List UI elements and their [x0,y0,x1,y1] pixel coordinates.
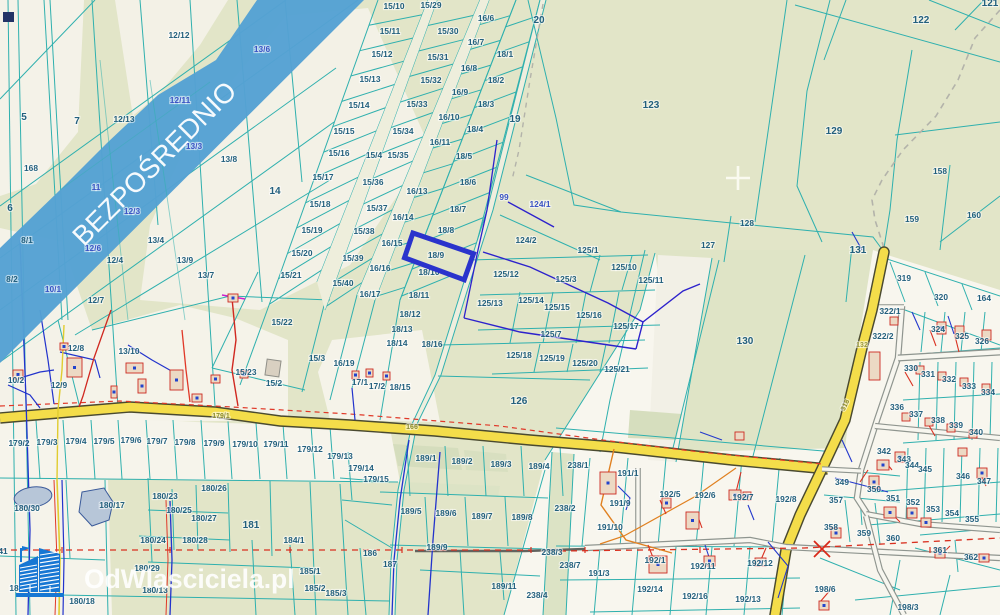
svg-text:125/3: 125/3 [556,274,577,284]
svg-text:192/8: 192/8 [776,494,797,504]
svg-text:126: 126 [511,396,528,407]
svg-text:189/7: 189/7 [472,511,493,521]
svg-text:13/6: 13/6 [254,44,271,54]
svg-text:125/18: 125/18 [506,350,532,360]
svg-text:191/9: 191/9 [610,498,631,508]
svg-text:238/3: 238/3 [542,547,563,557]
svg-text:125/16: 125/16 [576,310,602,320]
svg-text:352: 352 [906,497,920,507]
svg-text:18/3: 18/3 [478,99,495,109]
svg-text:15/21: 15/21 [281,270,302,280]
svg-text:13/4: 13/4 [148,235,165,245]
svg-text:18/5: 18/5 [456,151,473,161]
svg-text:15/15: 15/15 [334,126,355,136]
svg-text:353: 353 [926,504,940,514]
svg-text:180/27: 180/27 [191,513,217,523]
svg-text:128: 128 [740,218,754,228]
svg-text:189/2: 189/2 [452,456,473,466]
svg-text:12/11: 12/11 [170,95,191,105]
svg-text:16/16: 16/16 [370,263,391,273]
svg-text:6: 6 [7,203,13,214]
svg-text:15/18: 15/18 [310,199,331,209]
svg-text:12/13: 12/13 [114,114,135,124]
svg-text:15/22: 15/22 [272,317,293,327]
svg-text:18/1: 18/1 [497,49,514,59]
svg-text:180/17: 180/17 [99,500,125,510]
svg-text:13/9: 13/9 [177,255,194,265]
svg-text:20: 20 [533,15,545,26]
svg-text:351: 351 [886,493,900,503]
svg-text:185/3: 185/3 [326,588,347,598]
svg-text:332: 332 [942,374,956,384]
svg-text:189/6: 189/6 [436,508,457,518]
svg-text:8/1: 8/1 [21,235,33,245]
svg-text:15/20: 15/20 [292,248,313,258]
svg-text:125/20: 125/20 [572,358,598,368]
svg-text:15/16: 15/16 [329,148,350,158]
svg-text:179/14: 179/14 [348,463,374,473]
svg-text:238/4: 238/4 [527,590,548,600]
svg-text:160: 160 [967,210,981,220]
svg-text:14: 14 [269,186,281,197]
svg-text:125/12: 125/12 [493,269,519,279]
svg-text:18/4: 18/4 [467,124,484,134]
svg-text:192/5: 192/5 [660,489,681,499]
svg-text:18/7: 18/7 [450,204,467,214]
svg-text:12/7: 12/7 [88,295,105,305]
svg-text:16/7: 16/7 [468,37,485,47]
svg-text:125/15: 125/15 [544,302,570,312]
svg-text:15/10: 15/10 [384,1,405,11]
svg-text:125/21: 125/21 [604,364,630,374]
svg-text:18/12: 18/12 [400,309,421,319]
svg-text:18/16: 18/16 [422,339,443,349]
svg-text:16/11: 16/11 [430,137,451,147]
svg-text:179/9: 179/9 [204,438,225,448]
svg-text:13/10: 13/10 [119,346,140,356]
svg-text:187: 187 [383,559,397,569]
svg-text:15/2: 15/2 [266,378,283,388]
svg-text:358: 358 [824,522,838,532]
svg-text:168: 168 [24,163,38,173]
svg-text:15/23: 15/23 [236,367,257,377]
svg-text:334: 334 [981,387,995,397]
svg-text:191/10: 191/10 [597,522,623,532]
svg-text:15/30: 15/30 [438,26,459,36]
svg-text:179/11: 179/11 [263,439,288,449]
svg-text:10/1: 10/1 [45,284,62,294]
svg-text:180/26: 180/26 [201,483,227,493]
svg-text:124/1: 124/1 [530,199,551,209]
svg-text:326: 326 [975,336,989,346]
svg-text:191/3: 191/3 [589,568,610,578]
svg-text:179/5: 179/5 [94,436,115,446]
svg-text:347: 347 [977,476,991,486]
svg-text:15/40: 15/40 [333,278,354,288]
svg-text:16/15: 16/15 [382,238,403,248]
svg-text:16/19: 16/19 [334,358,355,368]
svg-text:180/25: 180/25 [166,505,192,515]
svg-text:333: 333 [962,381,976,391]
svg-text:125/14: 125/14 [518,295,544,305]
svg-text:320: 320 [934,292,948,302]
svg-text:15/39: 15/39 [343,253,364,263]
svg-text:339: 339 [949,420,963,430]
svg-text:15/3: 15/3 [309,353,326,363]
svg-text:179/6: 179/6 [121,435,142,445]
svg-text:16/10: 16/10 [439,112,460,122]
svg-text:15/38: 15/38 [354,226,375,236]
svg-text:5: 5 [21,112,27,123]
svg-text:357: 357 [829,495,843,505]
svg-text:179/15: 179/15 [363,474,389,484]
svg-text:OdWlasciciela.pl: OdWlasciciela.pl [84,564,295,594]
svg-text:18/11: 18/11 [409,290,430,300]
svg-text:361: 361 [933,545,947,555]
svg-text:179/4: 179/4 [66,436,87,446]
svg-text:180/23: 180/23 [152,491,178,501]
svg-text:10/2: 10/2 [8,375,25,385]
svg-text:12/3: 12/3 [124,206,141,216]
svg-text:18/14: 18/14 [387,338,408,348]
svg-text:124/2: 124/2 [516,235,537,245]
svg-text:179/8: 179/8 [175,437,196,447]
svg-text:13/8: 13/8 [221,154,238,164]
svg-text:180/28: 180/28 [182,535,208,545]
svg-text:189/1: 189/1 [416,453,437,463]
svg-text:338: 338 [931,415,945,425]
svg-text:238/7: 238/7 [560,560,581,570]
svg-text:122: 122 [913,15,930,26]
svg-text:355: 355 [965,514,979,524]
svg-text:179/1: 179/1 [212,413,230,420]
svg-text:18: 18 [9,583,19,593]
svg-text:322/1: 322/1 [880,306,901,316]
svg-text:15/34: 15/34 [393,126,414,136]
svg-text:18/8: 18/8 [438,225,455,235]
svg-text:238/2: 238/2 [555,503,576,513]
svg-text:180/18: 180/18 [69,596,95,606]
svg-text:15/36: 15/36 [363,177,384,187]
svg-text:189/11: 189/11 [491,581,516,591]
svg-text:340: 340 [969,427,983,437]
svg-text:180/24: 180/24 [140,535,166,545]
svg-text:19: 19 [509,114,521,125]
svg-text:238/1: 238/1 [568,460,589,470]
svg-text:41: 41 [0,546,8,556]
svg-text:15/14: 15/14 [349,100,370,110]
svg-text:16/17: 16/17 [360,289,381,299]
svg-text:324: 324 [931,324,945,334]
svg-text:12/9: 12/9 [51,380,68,390]
svg-text:125/19: 125/19 [539,353,565,363]
svg-text:13/7: 13/7 [198,270,215,280]
svg-text:322/2: 322/2 [873,331,894,341]
svg-text:129: 129 [826,126,843,137]
svg-text:7: 7 [74,116,80,127]
svg-text:189/5: 189/5 [401,506,422,516]
svg-text:189/3: 189/3 [491,459,512,469]
svg-text:354: 354 [945,508,959,518]
svg-text:16/8: 16/8 [461,63,478,73]
svg-text:15/32: 15/32 [421,75,442,85]
svg-text:15/12: 15/12 [372,49,393,59]
svg-text:191/1: 191/1 [618,468,639,478]
svg-text:189/8: 189/8 [512,512,533,522]
svg-text:15/4: 15/4 [366,150,383,160]
svg-text:192/6: 192/6 [695,490,716,500]
svg-text:198/3: 198/3 [898,602,919,612]
svg-text:18/9: 18/9 [428,250,445,260]
svg-text:349: 349 [835,477,849,487]
svg-text:179/2: 179/2 [9,438,30,448]
svg-text:342: 342 [877,446,891,456]
svg-text:12/6: 12/6 [85,243,102,253]
svg-text:17/1: 17/1 [352,377,369,387]
svg-text:8/2: 8/2 [6,274,18,284]
svg-text:360: 360 [886,533,900,543]
svg-text:123: 123 [643,100,660,111]
svg-text:192/7: 192/7 [733,492,754,502]
svg-text:12/4: 12/4 [107,255,124,265]
svg-text:186: 186 [363,548,377,558]
svg-text:16/6: 16/6 [478,13,495,23]
svg-text:325: 325 [955,331,969,341]
svg-text:189/4: 189/4 [529,461,550,471]
svg-text:15/33: 15/33 [407,99,428,109]
svg-text:15/31: 15/31 [428,52,449,62]
svg-text:166: 166 [406,424,418,431]
svg-text:15/19: 15/19 [302,225,323,235]
svg-text:350: 350 [867,484,881,494]
svg-text:121: 121 [982,0,999,9]
svg-text:15/11: 15/11 [380,26,401,36]
svg-text:179/13: 179/13 [327,451,353,461]
svg-text:18/6: 18/6 [460,177,477,187]
svg-text:18/15: 18/15 [390,382,411,392]
svg-text:17/2: 17/2 [369,381,386,391]
svg-text:192/16: 192/16 [682,591,708,601]
svg-text:192/14: 192/14 [637,584,663,594]
svg-text:18/2: 18/2 [488,75,505,85]
svg-text:331: 331 [921,369,935,379]
svg-text:319: 319 [897,273,911,283]
svg-text:13/3: 13/3 [186,141,203,151]
svg-text:198/6: 198/6 [815,584,836,594]
svg-text:125/13: 125/13 [477,298,503,308]
svg-text:192/13: 192/13 [735,594,761,604]
svg-text:164: 164 [977,293,991,303]
svg-text:179/7: 179/7 [147,436,168,446]
svg-text:15/17: 15/17 [313,172,334,182]
svg-text:336: 336 [890,402,904,412]
svg-text:359: 359 [857,528,871,538]
svg-text:125/1: 125/1 [578,245,599,255]
svg-text:179/10: 179/10 [232,439,258,449]
svg-text:12/8: 12/8 [68,343,85,353]
svg-text:345: 345 [918,464,932,474]
svg-text:185/2: 185/2 [305,583,326,593]
svg-text:130: 130 [737,336,754,347]
svg-text:99: 99 [499,192,509,202]
svg-text:158: 158 [933,166,947,176]
svg-text:337: 337 [909,409,923,419]
svg-text:125/11: 125/11 [638,275,663,285]
svg-text:189/9: 189/9 [427,542,448,552]
svg-text:125/17: 125/17 [613,321,639,331]
svg-text:15/29: 15/29 [421,0,442,10]
svg-text:362: 362 [964,552,978,562]
svg-text:127: 127 [701,240,715,250]
svg-text:192/11: 192/11 [690,561,715,571]
svg-text:11: 11 [92,182,101,192]
svg-text:125/10: 125/10 [611,262,637,272]
svg-text:15/35: 15/35 [388,150,409,160]
svg-text:125/7: 125/7 [541,329,562,339]
svg-text:132: 132 [856,342,868,349]
svg-text:330: 330 [904,363,918,373]
svg-text:185/1: 185/1 [300,566,321,576]
svg-text:180/30: 180/30 [14,503,40,513]
svg-text:179/3: 179/3 [37,437,58,447]
svg-text:131: 131 [850,245,867,256]
svg-text:16/13: 16/13 [407,186,428,196]
svg-text:15/37: 15/37 [367,203,388,213]
svg-text:15/13: 15/13 [360,74,381,84]
svg-text:16/14: 16/14 [393,212,414,222]
svg-text:192/1: 192/1 [645,555,666,565]
svg-text:192/12: 192/12 [747,558,773,568]
svg-text:12/12: 12/12 [169,30,190,40]
svg-text:184/1: 184/1 [284,535,305,545]
svg-text:346: 346 [956,471,970,481]
svg-text:16/9: 16/9 [452,87,469,97]
svg-text:18/13: 18/13 [392,324,413,334]
svg-text:179/12: 179/12 [297,444,323,454]
svg-text:159: 159 [905,214,919,224]
svg-text:181: 181 [243,520,260,531]
